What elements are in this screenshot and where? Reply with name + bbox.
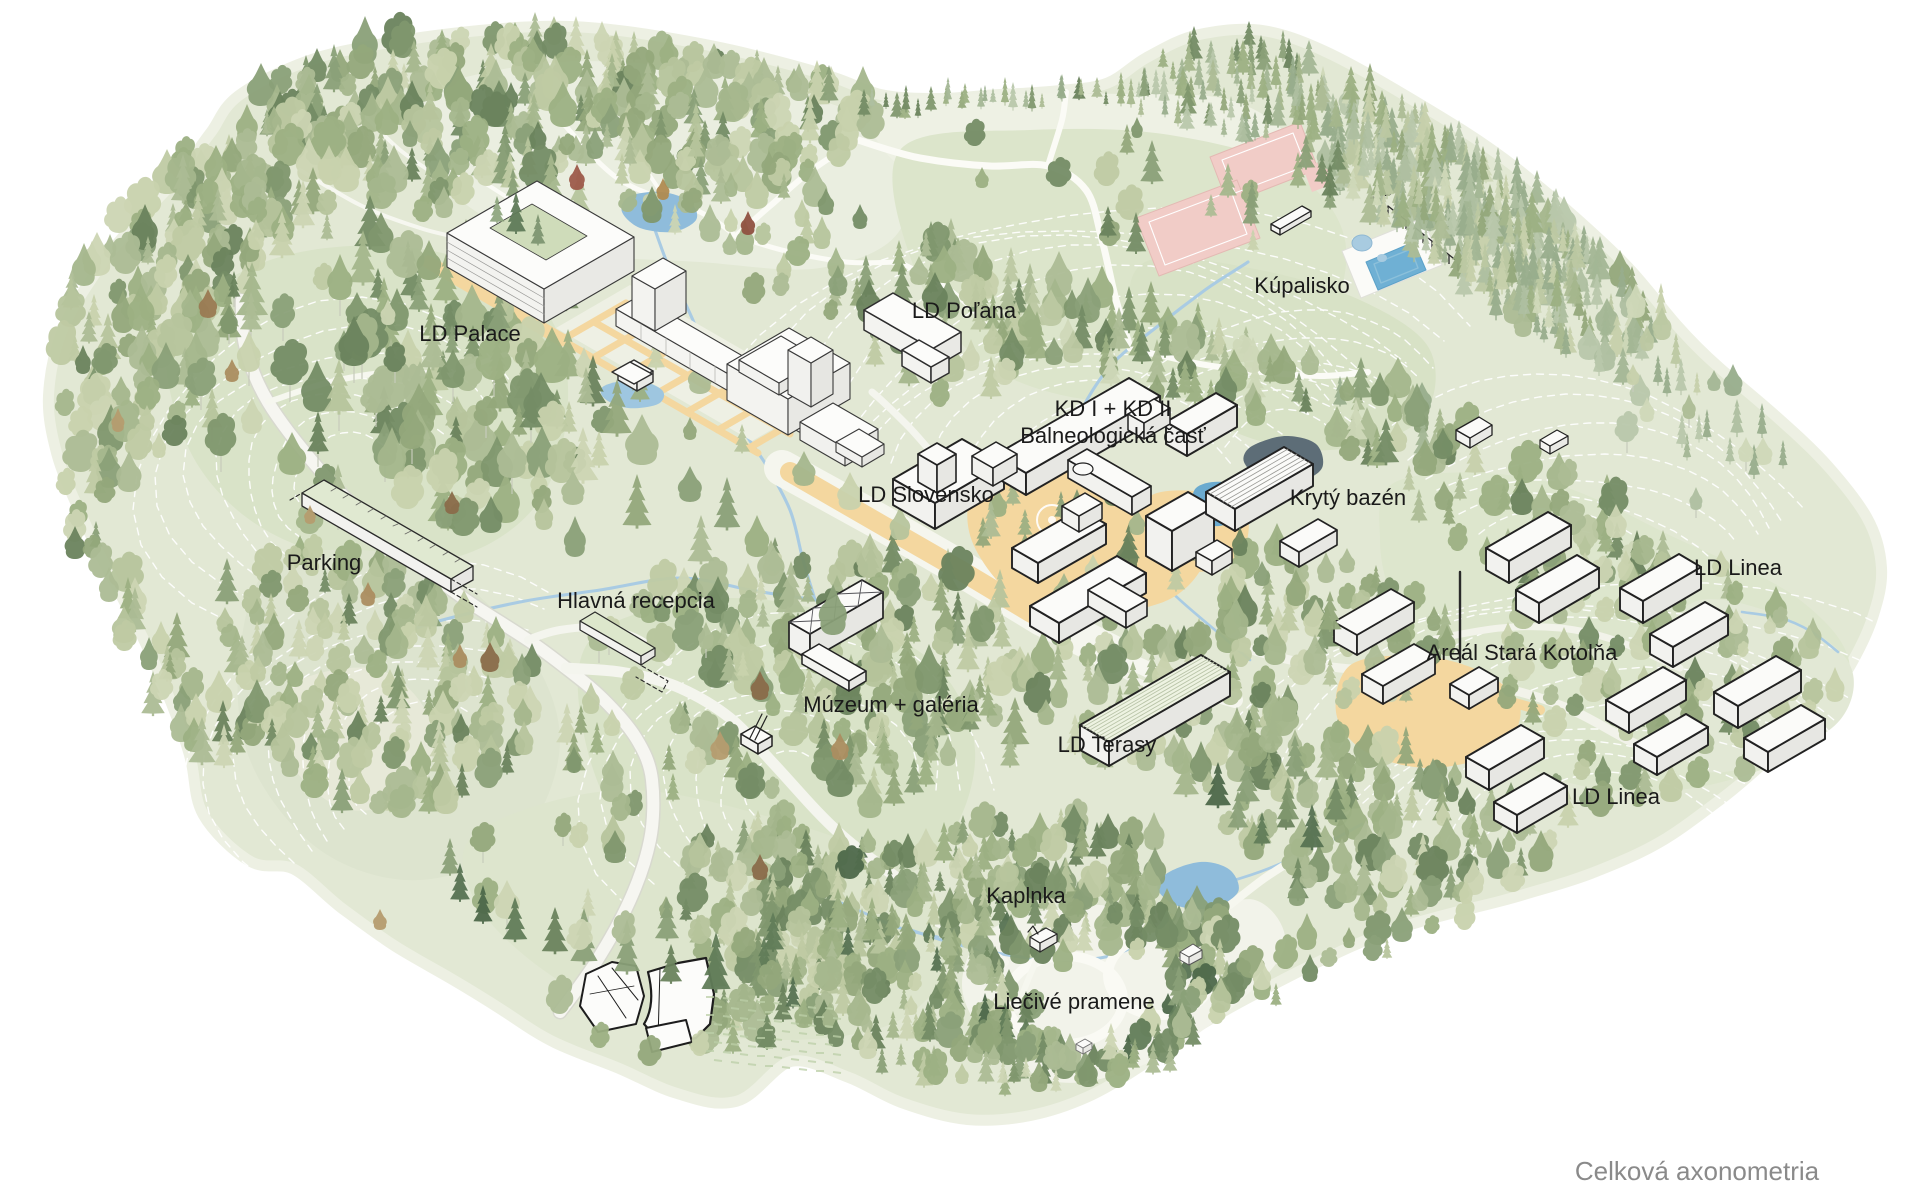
svg-text:Areál Stará Kotolňa: Areál Stará Kotolňa [1427, 640, 1619, 665]
svg-text:Parking: Parking [287, 550, 362, 575]
svg-text:Balneologická časť: Balneologická časť [1020, 423, 1206, 448]
svg-text:Celková axonometria: Celková axonometria [1575, 1156, 1820, 1186]
svg-text:LD Slovensko: LD Slovensko [858, 482, 994, 507]
svg-text:Krytý bazén: Krytý bazén [1290, 485, 1406, 510]
svg-text:Kúpalisko: Kúpalisko [1254, 273, 1349, 298]
svg-text:Kaplnka: Kaplnka [986, 883, 1066, 908]
svg-text:Hlavná recepcia: Hlavná recepcia [557, 588, 716, 613]
svg-text:Múzeum + galéria: Múzeum + galéria [803, 692, 979, 717]
svg-text:LD Terasy: LD Terasy [1058, 732, 1157, 757]
svg-text:Liečivé pramene: Liečivé pramene [993, 989, 1154, 1014]
svg-text:LD Palace: LD Palace [419, 321, 521, 346]
svg-text:KD I + KD II: KD I + KD II [1055, 396, 1172, 421]
svg-text:LD Linea: LD Linea [1694, 555, 1783, 580]
svg-text:LD Linea: LD Linea [1572, 784, 1661, 809]
svg-text:LD Poľana: LD Poľana [912, 298, 1017, 323]
